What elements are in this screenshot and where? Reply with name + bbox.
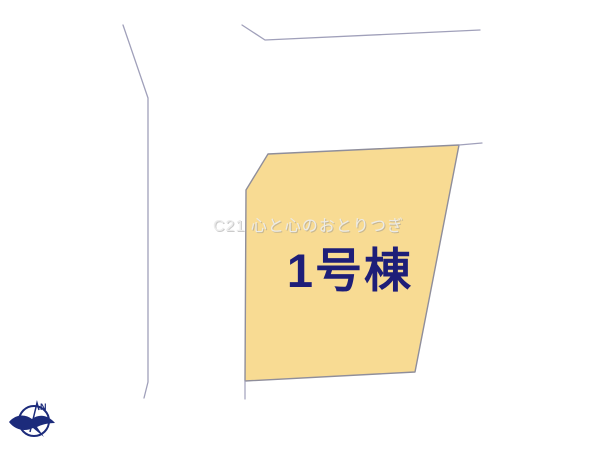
boundary-line-top-right	[242, 25, 480, 40]
site-plan: C21 心と心のおとりつぎ 1号棟 N	[0, 0, 600, 450]
parcel-label: 1号棟	[287, 244, 413, 297]
boundary-line-left	[123, 25, 148, 398]
compass-n-label: N	[40, 402, 47, 412]
site-plan-drawing: C21 心と心のおとりつぎ 1号棟 N	[0, 0, 600, 450]
compass-north-icon: N	[9, 402, 55, 437]
watermark-text: C21 心と心のおとりつぎ	[213, 217, 404, 235]
boundary-extension-right	[459, 143, 482, 145]
